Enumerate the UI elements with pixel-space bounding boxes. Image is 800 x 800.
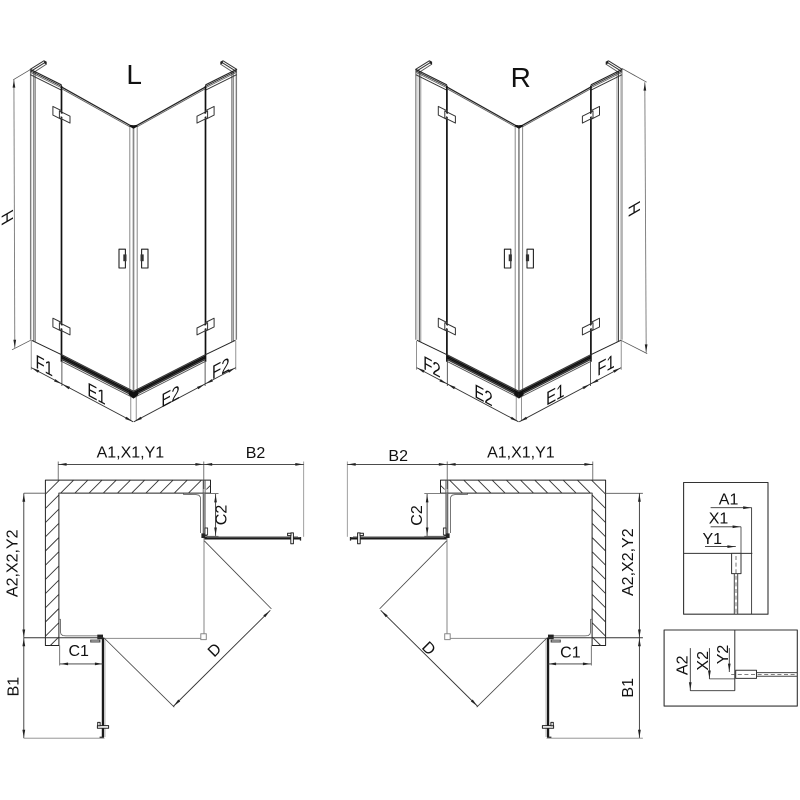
svg-text:A2: A2 xyxy=(675,655,692,675)
svg-text:B1: B1 xyxy=(620,678,637,698)
svg-text:R: R xyxy=(511,62,531,93)
svg-text:X2: X2 xyxy=(695,651,712,671)
svg-text:C2: C2 xyxy=(409,505,426,526)
svg-text:A2,X2,Y2: A2,X2,Y2 xyxy=(5,529,22,597)
svg-text:C2: C2 xyxy=(213,505,230,526)
svg-text:C1: C1 xyxy=(560,645,581,662)
svg-text:B2: B2 xyxy=(388,448,408,465)
svg-text:A1: A1 xyxy=(719,492,739,509)
svg-text:B1: B1 xyxy=(6,677,23,697)
svg-text:B2: B2 xyxy=(246,445,266,462)
svg-text:Y1: Y1 xyxy=(703,531,723,548)
svg-text:L: L xyxy=(126,59,142,90)
svg-text:Y2: Y2 xyxy=(715,645,732,665)
svg-text:C1: C1 xyxy=(68,643,89,660)
svg-text:A1,X1,Y1: A1,X1,Y1 xyxy=(97,445,165,462)
svg-text:X1: X1 xyxy=(709,511,729,528)
svg-text:A2,X2,Y2: A2,X2,Y2 xyxy=(620,528,637,596)
svg-text:A1,X1,Y1: A1,X1,Y1 xyxy=(487,445,555,462)
